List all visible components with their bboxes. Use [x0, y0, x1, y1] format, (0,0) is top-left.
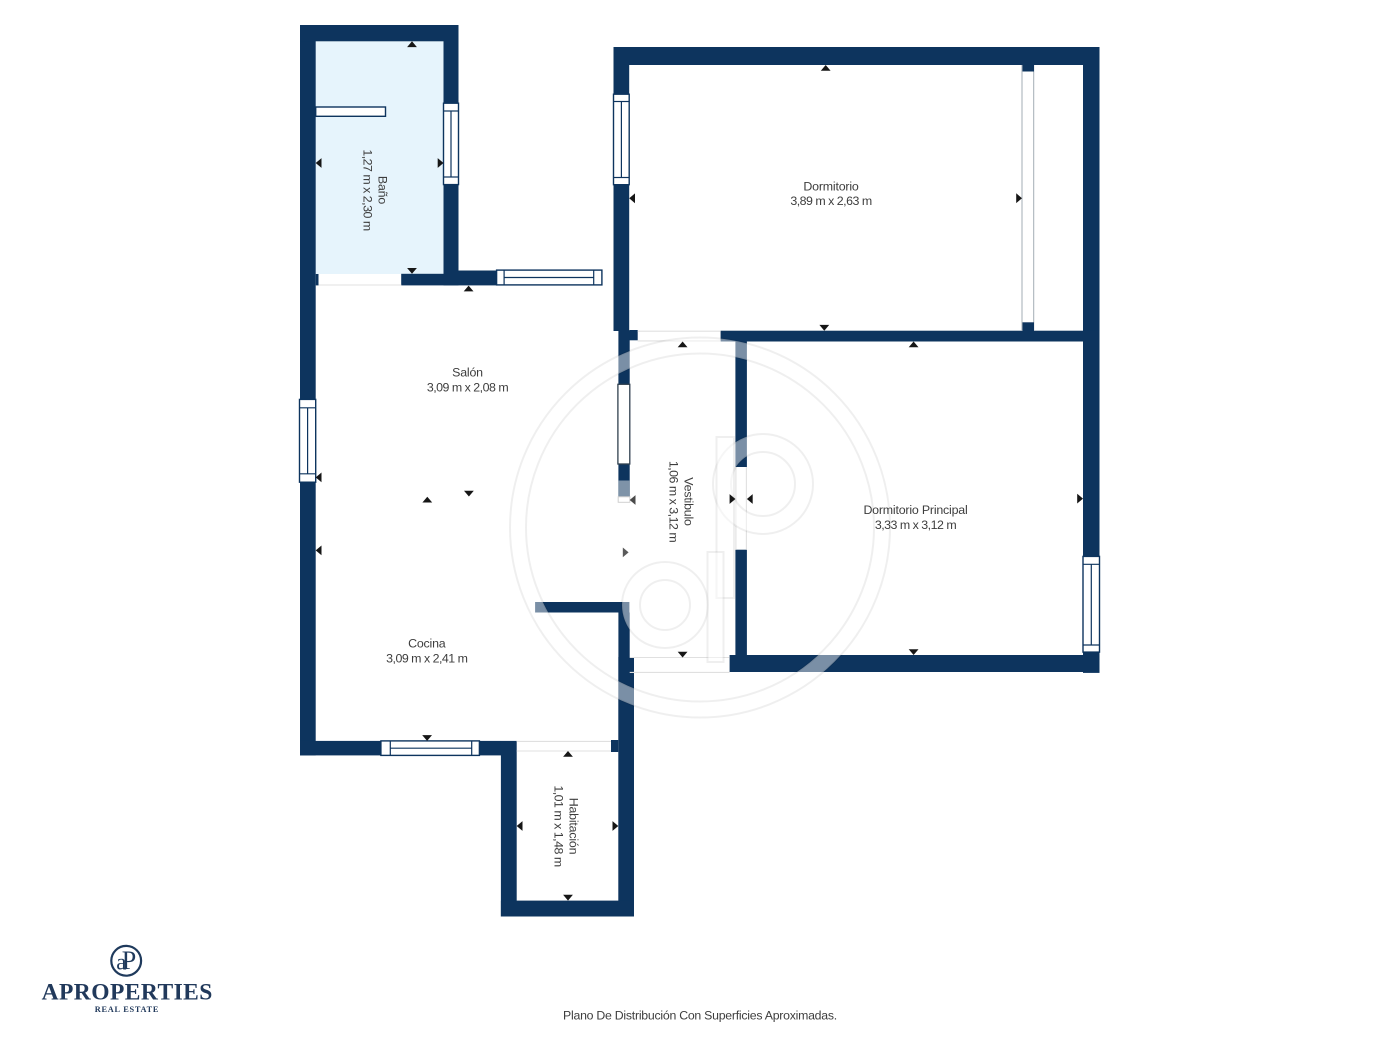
- svg-text:3,09 m x 2,41 m: 3,09 m x 2,41 m: [386, 652, 468, 666]
- svg-text:Plano De Distribución Con Supe: Plano De Distribución Con Superficies Ap…: [563, 1008, 837, 1022]
- svg-text:Cocina: Cocina: [408, 637, 446, 651]
- svg-text:Baño: Baño: [376, 176, 390, 204]
- svg-text:Habitación: Habitación: [567, 798, 581, 855]
- svg-text:3,09 m x 2,08 m: 3,09 m x 2,08 m: [427, 380, 509, 394]
- svg-text:Vestibulo: Vestibulo: [682, 477, 696, 526]
- svg-text:Dormitorio Principal: Dormitorio Principal: [863, 503, 967, 517]
- svg-text:1,01 m x 1,48 m: 1,01 m x 1,48 m: [552, 785, 566, 867]
- svg-text:Dormitorio: Dormitorio: [803, 179, 858, 193]
- svg-text:Salón: Salón: [452, 365, 483, 379]
- svg-text:3,89 m x 2,63 m: 3,89 m x 2,63 m: [790, 194, 872, 208]
- svg-text:P: P: [122, 946, 136, 975]
- svg-text:APROPERTIES: APROPERTIES: [42, 980, 213, 1006]
- svg-text:REAL ESTATE: REAL ESTATE: [95, 1005, 159, 1014]
- svg-text:1,27 m x 2,30 m: 1,27 m x 2,30 m: [361, 149, 375, 231]
- svg-text:1,06 m x 3,12 m: 1,06 m x 3,12 m: [667, 461, 681, 543]
- svg-text:3,33 m x 3,12 m: 3,33 m x 3,12 m: [875, 518, 957, 532]
